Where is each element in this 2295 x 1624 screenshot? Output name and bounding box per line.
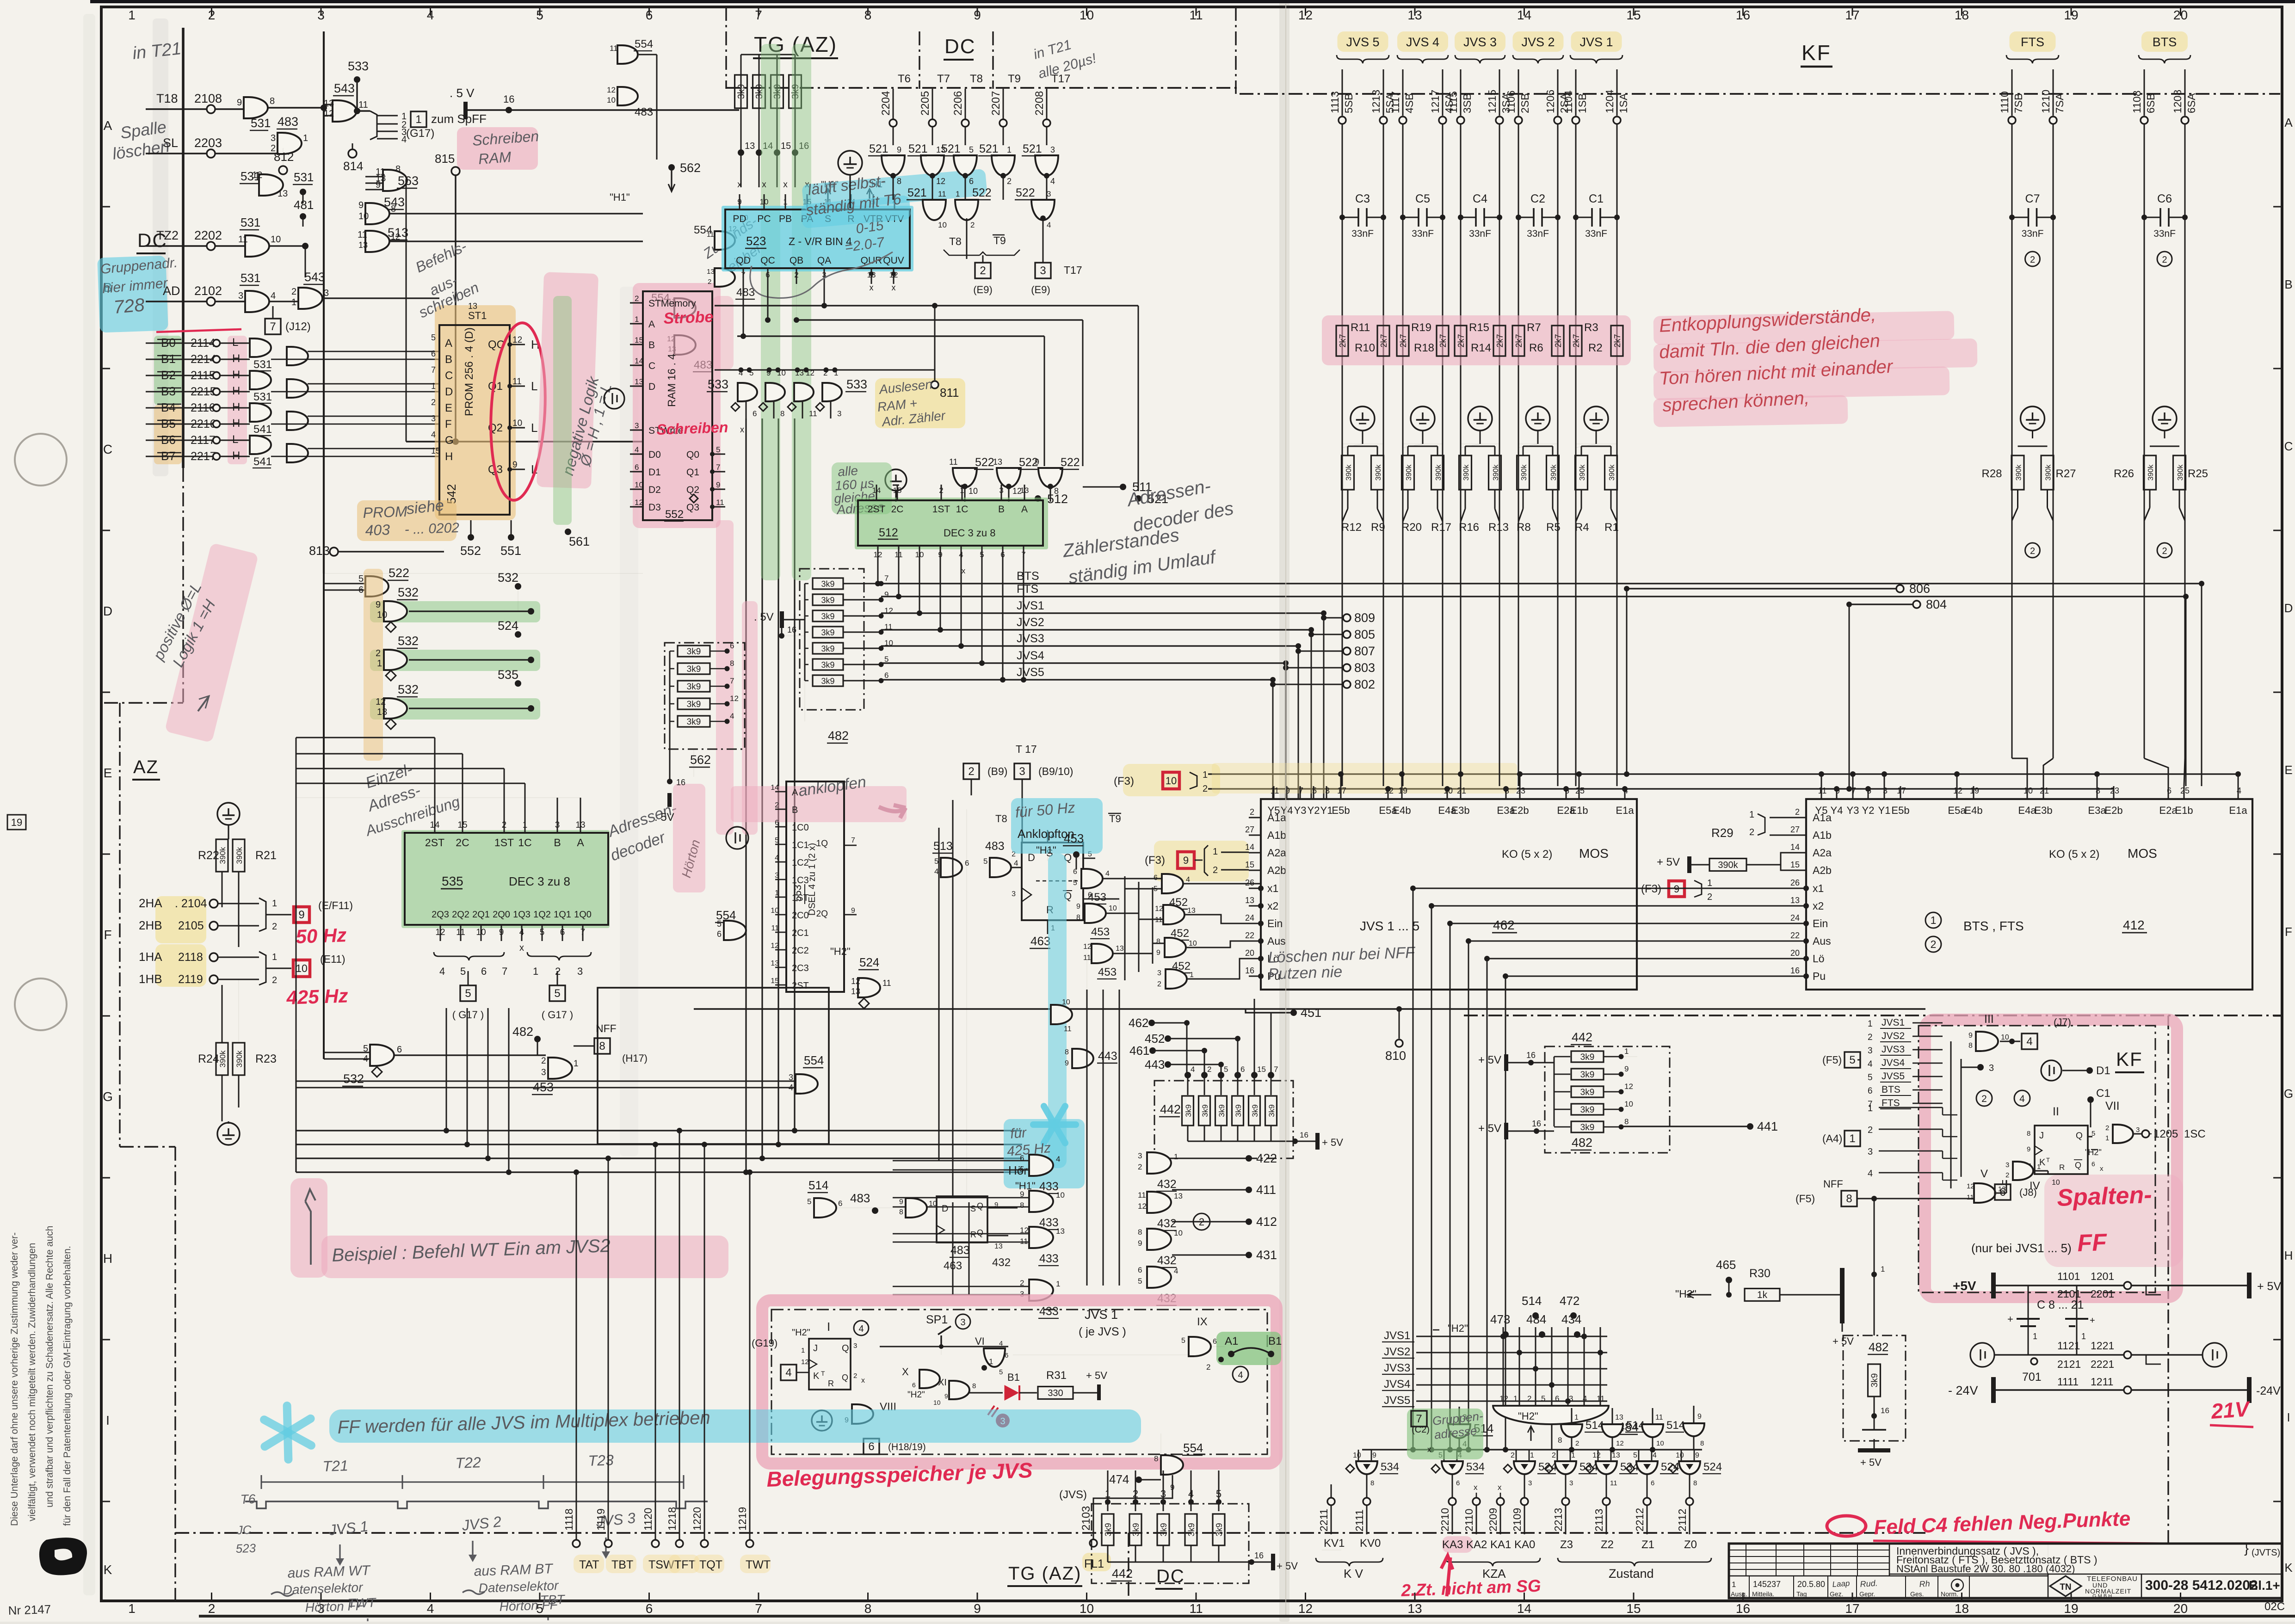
svg-text:11: 11 xyxy=(1064,1025,1072,1033)
svg-text:473: 473 xyxy=(1490,1312,1510,1326)
svg-text:Ein: Ein xyxy=(1813,917,1828,929)
svg-text:PROM: PROM xyxy=(363,503,408,521)
svg-text:532: 532 xyxy=(398,585,419,599)
svg-text:11: 11 xyxy=(1655,1414,1663,1421)
svg-text:1: 1 xyxy=(2081,1332,2086,1341)
svg-text:Z3: Z3 xyxy=(1560,1538,1573,1551)
svg-text:C7: C7 xyxy=(2025,192,2040,205)
svg-text:16: 16 xyxy=(1736,8,1750,22)
svg-text:4: 4 xyxy=(934,867,938,876)
svg-text:524: 524 xyxy=(1703,1461,1722,1473)
svg-text:472: 472 xyxy=(1560,1294,1579,1308)
svg-text:VI: VI xyxy=(975,1335,985,1347)
svg-text:3k9: 3k9 xyxy=(821,596,834,605)
svg-text:11: 11 xyxy=(1020,1237,1028,1246)
svg-text:10: 10 xyxy=(1080,8,1094,22)
svg-text:9: 9 xyxy=(897,145,901,154)
svg-text:(E9): (E9) xyxy=(1031,284,1050,295)
svg-text:C: C xyxy=(648,361,655,371)
svg-text:KF: KF xyxy=(2116,1048,2143,1070)
svg-text:431: 431 xyxy=(1256,1248,1277,1262)
svg-text:"H2": "H2" xyxy=(830,946,851,957)
svg-text:PD: PD xyxy=(733,214,746,224)
svg-text:7: 7 xyxy=(851,837,855,844)
svg-text:D1: D1 xyxy=(648,467,661,478)
svg-text:2: 2 xyxy=(1527,1394,1531,1403)
svg-text:A1: A1 xyxy=(1225,1335,1238,1347)
svg-text:"H1": "H1" xyxy=(610,191,630,203)
svg-text:SL: SL xyxy=(163,136,178,150)
svg-text:22: 22 xyxy=(1790,931,1800,940)
svg-text:E5b: E5b xyxy=(1891,805,1909,816)
svg-text:13: 13 xyxy=(468,301,477,311)
svg-text:803: 803 xyxy=(1354,661,1375,675)
svg-text:2206: 2206 xyxy=(952,91,964,116)
svg-text:1104: 1104 xyxy=(1562,90,1574,113)
svg-text:9: 9 xyxy=(512,460,518,470)
svg-text:14: 14 xyxy=(1517,8,1531,22)
svg-text:4: 4 xyxy=(1014,859,1018,867)
svg-text:KA3: KA3 xyxy=(1442,1538,1463,1551)
svg-text:Schreiben: Schreiben xyxy=(656,419,728,438)
svg-text:433: 433 xyxy=(1039,1305,1059,1318)
svg-text:Y1: Y1 xyxy=(1320,805,1333,816)
svg-text:NStAnl Baustufe 2W 30. 80 .1: NStAnl Baustufe 2W 30. 80 .180 (4032) xyxy=(1896,1563,2075,1575)
svg-text:11: 11 xyxy=(1967,1193,1974,1201)
svg-text:Aus: Aus xyxy=(1267,935,1286,947)
svg-text:12: 12 xyxy=(1592,1452,1601,1459)
svg-text:5: 5 xyxy=(1138,1277,1142,1286)
svg-text:2: 2 xyxy=(2030,255,2035,265)
svg-text:JVS3: JVS3 xyxy=(1384,1362,1410,1374)
svg-text:6: 6 xyxy=(1073,868,1077,876)
svg-text:12: 12 xyxy=(635,498,643,507)
svg-text:QA: QA xyxy=(817,255,831,266)
svg-text:6: 6 xyxy=(2167,786,2172,795)
svg-text:D: D xyxy=(648,381,655,392)
svg-text:9: 9 xyxy=(1697,1413,1702,1421)
svg-text:1: 1 xyxy=(272,952,277,962)
svg-text:Laap: Laap xyxy=(1832,1579,1850,1589)
svg-text:2201: 2201 xyxy=(2091,1288,2114,1300)
svg-text:805: 805 xyxy=(1354,627,1375,641)
svg-text:PROM 256 . 4 (D): PROM 256 . 4 (D) xyxy=(463,327,475,416)
svg-text:4: 4 xyxy=(1174,1267,1178,1275)
svg-text:5: 5 xyxy=(460,966,466,977)
svg-text:4: 4 xyxy=(1050,177,1055,186)
svg-text:522: 522 xyxy=(1016,186,1035,199)
svg-text:AZ: AZ xyxy=(133,757,159,777)
svg-text:B: B xyxy=(792,805,798,815)
svg-text:2207: 2207 xyxy=(990,91,1002,116)
svg-text:Q: Q xyxy=(977,1201,983,1211)
svg-text:FTS: FTS xyxy=(1882,1098,1900,1108)
svg-text:FF: FF xyxy=(2077,1229,2108,1257)
svg-text:1121: 1121 xyxy=(2057,1340,2080,1352)
svg-text:425 Hz: 425 Hz xyxy=(286,984,349,1009)
svg-text:Q: Q xyxy=(842,1373,848,1382)
svg-text:3: 3 xyxy=(853,1342,857,1350)
svg-text:6: 6 xyxy=(1868,1086,1873,1096)
svg-text:6: 6 xyxy=(775,819,779,827)
svg-text:T6: T6 xyxy=(898,73,911,85)
svg-text:TG (AZ): TG (AZ) xyxy=(1008,1563,1081,1584)
svg-text:3: 3 xyxy=(1325,786,1330,795)
svg-text:2121: 2121 xyxy=(2057,1358,2081,1370)
svg-text:551: 551 xyxy=(500,544,521,558)
svg-text:12: 12 xyxy=(1499,1394,1508,1403)
svg-text:3k9: 3k9 xyxy=(821,677,834,686)
svg-text:(F3): (F3) xyxy=(1145,854,1165,867)
svg-text:13: 13 xyxy=(377,707,387,717)
svg-text:4: 4 xyxy=(431,430,436,439)
svg-text:3: 3 xyxy=(1883,786,1888,795)
svg-text:und strafbar und verpflichten: und strafbar und verpflichten zu Schaden… xyxy=(44,1226,55,1507)
svg-text:2111: 2111 xyxy=(1353,1509,1365,1532)
svg-text:4: 4 xyxy=(1191,1065,1195,1074)
svg-text:8: 8 xyxy=(2027,1130,2030,1138)
svg-text:T8: T8 xyxy=(949,235,962,247)
svg-text:MOS: MOS xyxy=(1579,846,1609,861)
svg-text:T9: T9 xyxy=(993,234,1006,246)
svg-text:A: A xyxy=(648,319,655,330)
svg-text:1: 1 xyxy=(1530,1452,1534,1459)
svg-text:Q: Q xyxy=(2075,1161,2081,1170)
svg-text:1: 1 xyxy=(1174,1152,1178,1161)
svg-text:2203: 2203 xyxy=(194,136,222,150)
svg-text:7: 7 xyxy=(431,365,436,375)
svg-text:x: x xyxy=(1474,1483,1478,1492)
svg-text:2109: 2109 xyxy=(1511,1508,1523,1532)
svg-text:532: 532 xyxy=(398,683,419,696)
svg-text:13: 13 xyxy=(994,1243,1003,1250)
svg-text:15: 15 xyxy=(635,336,643,344)
svg-text:4: 4 xyxy=(1583,1394,1587,1403)
svg-text:553: 553 xyxy=(792,885,803,902)
svg-text:2213: 2213 xyxy=(1552,1508,1564,1532)
svg-text:1: 1 xyxy=(574,1059,579,1069)
svg-text:552: 552 xyxy=(665,508,684,521)
svg-text:16: 16 xyxy=(1790,966,1800,975)
svg-text:2: 2 xyxy=(1007,177,1012,186)
svg-text:Rh: Rh xyxy=(1919,1579,1930,1589)
svg-text:533: 533 xyxy=(348,59,369,73)
svg-text:3: 3 xyxy=(1050,145,1055,154)
svg-text:III: III xyxy=(1984,1013,1994,1026)
svg-text:Hörton FF: Hörton FF xyxy=(499,1598,559,1614)
svg-text:3k9: 3k9 xyxy=(821,612,834,621)
svg-text:14: 14 xyxy=(1245,843,1254,852)
svg-text:6: 6 xyxy=(2091,1160,2095,1168)
svg-text:9: 9 xyxy=(1076,903,1080,910)
svg-text:3k9: 3k9 xyxy=(1187,1523,1196,1536)
svg-text:3k9: 3k9 xyxy=(1251,1104,1259,1117)
svg-text:13: 13 xyxy=(1187,907,1196,915)
svg-text:453: 453 xyxy=(1064,831,1084,845)
svg-text:20.5.80: 20.5.80 xyxy=(1797,1580,1825,1589)
svg-text:DSEL 4 zu 1 (2 x): DSEL 4 zu 1 (2 x) xyxy=(807,843,817,916)
svg-text:10: 10 xyxy=(1062,998,1070,1006)
svg-text:1205: 1205 xyxy=(2153,1128,2178,1140)
svg-text:512: 512 xyxy=(879,526,898,539)
svg-text:Y2: Y2 xyxy=(1308,805,1320,816)
svg-text:19: 19 xyxy=(1398,786,1407,795)
svg-text:2k7: 2k7 xyxy=(1554,334,1563,347)
svg-text:KA1: KA1 xyxy=(1490,1538,1511,1551)
svg-text:R16: R16 xyxy=(1459,521,1479,534)
svg-text:A: A xyxy=(577,837,584,849)
svg-text:534: 534 xyxy=(1466,1461,1485,1473)
svg-text:33nF: 33nF xyxy=(2153,228,2176,239)
svg-text:2: 2 xyxy=(272,922,277,932)
svg-text:19: 19 xyxy=(2064,8,2078,22)
svg-text:3k9: 3k9 xyxy=(687,717,701,727)
svg-text:521: 521 xyxy=(907,186,927,199)
svg-text:A: A xyxy=(445,337,452,350)
svg-text:(H17): (H17) xyxy=(622,1052,648,1064)
svg-text:462: 462 xyxy=(1129,1016,1148,1030)
svg-text:15: 15 xyxy=(431,446,440,455)
svg-text:3: 3 xyxy=(2136,1126,2140,1134)
svg-text:T22: T22 xyxy=(455,1454,481,1471)
svg-text:R: R xyxy=(970,1230,976,1239)
svg-text:8: 8 xyxy=(972,1382,976,1390)
svg-text:6: 6 xyxy=(646,1601,653,1616)
svg-text:T17: T17 xyxy=(1064,264,1082,276)
svg-text:10: 10 xyxy=(512,418,522,428)
svg-text:JVS4: JVS4 xyxy=(1017,649,1044,662)
svg-text:13: 13 xyxy=(707,268,715,276)
svg-text:2: 2 xyxy=(1868,1033,1873,1042)
svg-text:V: V xyxy=(1980,1168,1988,1180)
svg-text:4: 4 xyxy=(427,8,434,22)
svg-text:x: x xyxy=(892,283,896,292)
svg-text:390k: 390k xyxy=(1375,464,1382,481)
svg-text:KO (5 x 2): KO (5 x 2) xyxy=(1502,848,1552,861)
svg-text:521: 521 xyxy=(1023,142,1042,155)
svg-text:T: T xyxy=(2046,1156,2050,1163)
svg-text:"H2": "H2" xyxy=(792,1328,810,1338)
svg-text:5: 5 xyxy=(934,857,938,866)
svg-text:R2: R2 xyxy=(1588,342,1603,354)
svg-text:R7: R7 xyxy=(1527,321,1541,334)
svg-text:13: 13 xyxy=(1056,1227,1065,1236)
svg-text:412: 412 xyxy=(2123,918,2145,932)
svg-text:6: 6 xyxy=(730,641,734,650)
svg-text:7SA: 7SA xyxy=(2054,93,2066,113)
svg-text:3k9: 3k9 xyxy=(1580,1070,1595,1080)
svg-text:10: 10 xyxy=(1166,775,1177,787)
svg-text:1115: 1115 xyxy=(1447,91,1459,113)
svg-text:4: 4 xyxy=(1238,1370,1243,1380)
svg-text:AD: AD xyxy=(163,284,180,298)
svg-text:25: 25 xyxy=(2180,786,2190,795)
svg-text:A: A xyxy=(2284,116,2293,129)
svg-text:2ST: 2ST xyxy=(868,504,886,515)
svg-text:12: 12 xyxy=(851,977,860,986)
svg-text:3: 3 xyxy=(238,291,243,301)
svg-text:5: 5 xyxy=(1868,1073,1873,1083)
svg-text:1110: 1110 xyxy=(1999,91,2011,113)
svg-text:1204: 1204 xyxy=(1604,90,1616,113)
svg-text:443: 443 xyxy=(1145,1058,1165,1071)
svg-text:PB: PB xyxy=(779,214,792,224)
svg-text:6: 6 xyxy=(717,929,722,939)
svg-text:2: 2 xyxy=(970,221,975,229)
svg-text:463: 463 xyxy=(1030,934,1050,948)
svg-text:zum SpFF: zum SpFF xyxy=(431,112,487,126)
svg-text:E3a: E3a xyxy=(2088,805,2106,816)
svg-text:+: + xyxy=(2007,1313,2013,1325)
svg-text:562: 562 xyxy=(690,753,711,767)
svg-text:390k: 390k xyxy=(1405,464,1413,481)
svg-text:33nF: 33nF xyxy=(1527,228,1549,239)
svg-text:1HB: 1HB xyxy=(139,972,162,986)
svg-text:10: 10 xyxy=(296,962,308,974)
svg-text:ST1: ST1 xyxy=(468,310,487,321)
svg-text:1: 1 xyxy=(1732,1580,1736,1589)
svg-text:10: 10 xyxy=(377,610,387,620)
svg-text:(nur bei JVS1 ... 5): (nur bei JVS1 ... 5) xyxy=(1971,1241,2072,1255)
svg-text:523: 523 xyxy=(235,1541,256,1556)
svg-text:17: 17 xyxy=(1845,8,1859,22)
svg-text:11: 11 xyxy=(1610,1479,1617,1487)
svg-text:1220: 1220 xyxy=(691,1507,703,1531)
svg-text:9: 9 xyxy=(358,200,364,210)
svg-text:2: 2 xyxy=(1931,938,1937,950)
svg-text:23: 23 xyxy=(1516,786,1525,795)
svg-text:x: x xyxy=(519,943,524,953)
svg-text:474: 474 xyxy=(1109,1472,1129,1486)
svg-text:1: 1 xyxy=(2105,1134,2109,1142)
svg-text:1206: 1206 xyxy=(1544,90,1556,113)
svg-text:3: 3 xyxy=(837,409,841,418)
svg-text:2: 2 xyxy=(1749,827,1754,837)
svg-text:3: 3 xyxy=(1138,1151,1142,1160)
svg-text:1201: 1201 xyxy=(2091,1270,2114,1282)
svg-text:A2b: A2b xyxy=(1813,864,1832,876)
svg-text:432: 432 xyxy=(1157,1254,1177,1267)
svg-text:8: 8 xyxy=(1693,1479,1697,1487)
svg-text:KA0: KA0 xyxy=(1514,1538,1535,1551)
svg-text:R12: R12 xyxy=(1341,521,1362,534)
svg-text:2221: 2221 xyxy=(2091,1358,2114,1370)
svg-text:810: 810 xyxy=(1385,1049,1406,1063)
svg-text:R31: R31 xyxy=(1046,1369,1067,1382)
svg-text:A1a: A1a xyxy=(1267,812,1286,824)
svg-text:9: 9 xyxy=(1183,855,1189,866)
svg-text:K V: K V xyxy=(1344,1567,1363,1581)
svg-text:1HA: 1HA xyxy=(139,950,162,964)
svg-text:2k7: 2k7 xyxy=(1572,334,1581,347)
svg-text:6: 6 xyxy=(912,1381,916,1389)
svg-text:1Q: 1Q xyxy=(816,839,828,849)
svg-text:JVS3: JVS3 xyxy=(1882,1044,1905,1055)
svg-text:Y3: Y3 xyxy=(1294,805,1307,816)
svg-text:2k7: 2k7 xyxy=(1613,334,1622,347)
svg-text:. 5V: . 5V xyxy=(654,811,674,824)
svg-text:4: 4 xyxy=(439,966,445,977)
svg-text:541: 541 xyxy=(253,455,272,468)
svg-text:1: 1 xyxy=(415,113,421,126)
svg-text:17: 17 xyxy=(1845,1601,1859,1616)
svg-text:6: 6 xyxy=(1138,1266,1142,1274)
svg-text:I: I xyxy=(827,1320,830,1334)
svg-text:3: 3 xyxy=(1569,1479,1573,1487)
svg-text:411: 411 xyxy=(1256,1183,1276,1197)
svg-text:6: 6 xyxy=(838,1199,842,1208)
svg-text:STMemory: STMemory xyxy=(648,298,696,309)
svg-text:543: 543 xyxy=(334,81,355,95)
svg-text:3: 3 xyxy=(1019,765,1025,778)
svg-text:1: 1 xyxy=(775,889,779,897)
svg-text:8: 8 xyxy=(395,164,401,174)
svg-text:145237: 145237 xyxy=(1753,1580,1781,1589)
svg-text:5: 5 xyxy=(358,574,364,584)
svg-text:5SB: 5SB xyxy=(1343,93,1355,113)
svg-text:483: 483 xyxy=(736,286,755,299)
svg-text:483: 483 xyxy=(985,840,1005,853)
svg-text:1219: 1219 xyxy=(736,1507,748,1531)
svg-text:813: 813 xyxy=(309,544,330,558)
svg-text:4: 4 xyxy=(1653,1452,1657,1459)
svg-text:E3b: E3b xyxy=(1451,805,1469,816)
svg-text:Z2: Z2 xyxy=(1601,1538,1614,1551)
svg-text:(F3): (F3) xyxy=(1114,775,1134,787)
svg-text:Pu: Pu xyxy=(1813,970,1826,982)
svg-text:E4a: E4a xyxy=(2018,805,2036,816)
svg-text:4SB: 4SB xyxy=(1403,93,1415,113)
svg-text:1: 1 xyxy=(635,315,639,324)
svg-text:12: 12 xyxy=(771,942,779,950)
svg-text:514: 514 xyxy=(1666,1419,1685,1432)
svg-text:3k9: 3k9 xyxy=(1267,1104,1276,1117)
svg-text:1: 1 xyxy=(377,658,382,669)
svg-text:3: 3 xyxy=(1528,1479,1532,1487)
svg-text:390k: 390k xyxy=(1462,464,1470,481)
svg-text:Aus: Aus xyxy=(1813,935,1831,947)
svg-text:10: 10 xyxy=(969,486,978,496)
svg-text:13: 13 xyxy=(278,189,288,199)
svg-text:390k: 390k xyxy=(1550,464,1558,481)
svg-text:22: 22 xyxy=(1245,931,1254,940)
svg-text:11: 11 xyxy=(1818,786,1827,795)
svg-text:8: 8 xyxy=(897,177,901,186)
svg-text:R15: R15 xyxy=(1469,321,1489,334)
svg-text:8: 8 xyxy=(1065,1048,1069,1056)
svg-text:1113: 1113 xyxy=(1329,91,1341,113)
svg-text:20: 20 xyxy=(1790,948,1800,958)
svg-text:3: 3 xyxy=(1040,265,1046,277)
svg-text:412: 412 xyxy=(1256,1215,1277,1229)
svg-text:13: 13 xyxy=(1116,945,1124,953)
svg-text:3: 3 xyxy=(635,421,639,430)
svg-text:2105: 2105 xyxy=(178,919,204,932)
svg-text:531: 531 xyxy=(253,358,272,371)
svg-text:3: 3 xyxy=(1868,1147,1873,1157)
svg-text:2k7: 2k7 xyxy=(1338,334,1347,347)
svg-text:442: 442 xyxy=(1112,1567,1133,1581)
svg-text:422: 422 xyxy=(1256,1151,1277,1165)
svg-text:4: 4 xyxy=(1056,1155,1060,1163)
svg-text:11: 11 xyxy=(882,978,891,988)
svg-text:2: 2 xyxy=(208,1601,216,1616)
svg-text:483: 483 xyxy=(850,1191,870,1205)
svg-text:JC: JC xyxy=(236,1523,252,1537)
svg-text:532: 532 xyxy=(343,1072,364,1086)
svg-text:1: 1 xyxy=(1849,1132,1855,1145)
svg-text:1C1: 1C1 xyxy=(792,840,809,850)
